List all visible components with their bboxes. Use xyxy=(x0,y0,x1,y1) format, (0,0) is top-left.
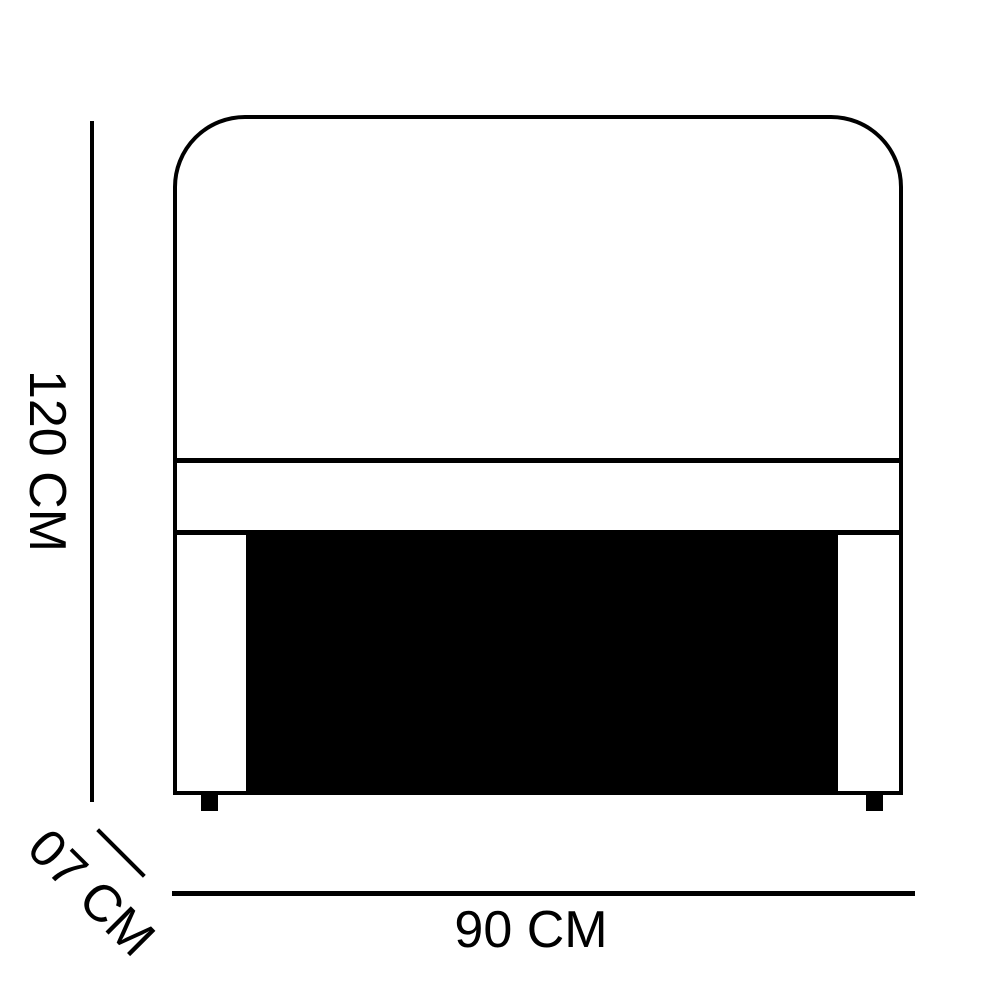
width-dimension-label: 90 CM xyxy=(454,904,607,956)
right-foot xyxy=(866,794,883,811)
headboard-outline xyxy=(173,115,903,795)
height-dimension-line xyxy=(90,121,94,802)
dimension-diagram: 120 CM 90 CM 07 CM xyxy=(0,0,1000,1000)
headboard-seam-line xyxy=(177,458,899,463)
depth-dimension-label: 07 CM xyxy=(18,820,163,965)
left-foot xyxy=(201,794,218,811)
width-dimension-line xyxy=(172,891,915,896)
height-dimension-label: 120 CM xyxy=(21,370,73,552)
headboard-base-panel xyxy=(246,534,838,791)
